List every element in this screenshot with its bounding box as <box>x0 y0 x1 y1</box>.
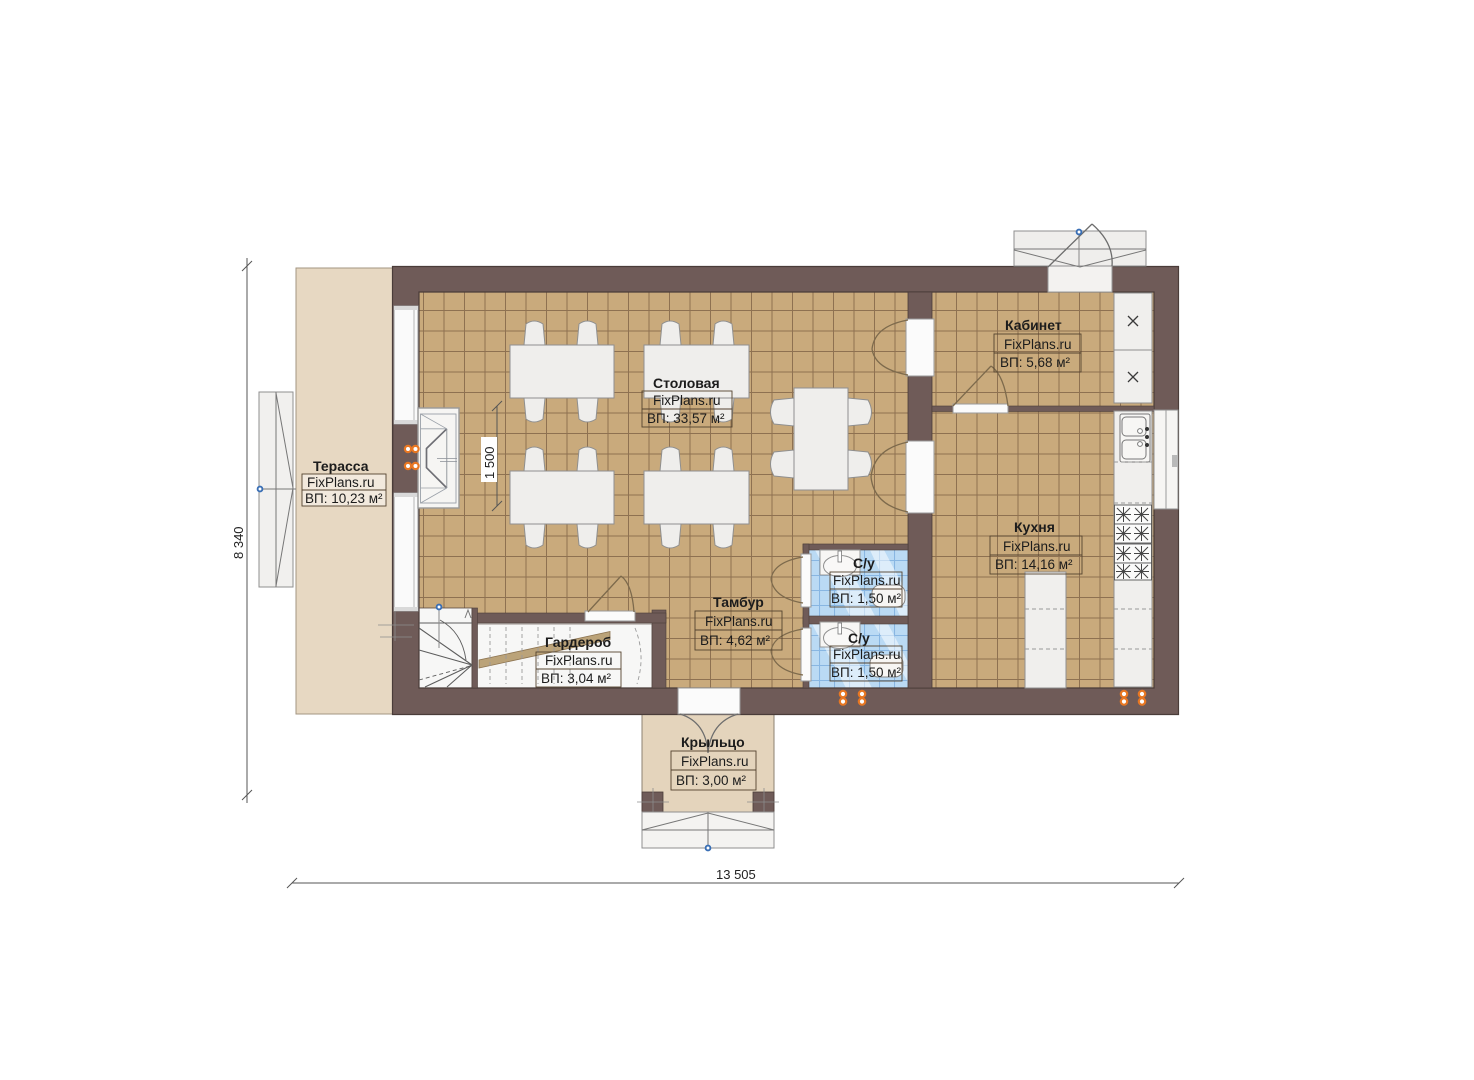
svg-text:ВП: 14,16 м²: ВП: 14,16 м² <box>995 557 1073 572</box>
svg-text:FixPlans.ru: FixPlans.ru <box>681 754 749 769</box>
svg-text:Столовая: Столовая <box>653 375 720 391</box>
svg-text:С/у: С/у <box>853 555 875 571</box>
svg-text:Кабинет: Кабинет <box>1005 317 1062 333</box>
svg-text:Терасса: Терасса <box>313 458 369 474</box>
svg-text:ВП: 4,62 м²: ВП: 4,62 м² <box>700 633 771 648</box>
svg-text:Гардероб: Гардероб <box>545 634 612 650</box>
svg-text:FixPlans.ru: FixPlans.ru <box>705 614 773 629</box>
svg-text:FixPlans.ru: FixPlans.ru <box>833 647 901 662</box>
svg-text:8 340: 8 340 <box>231 526 246 559</box>
svg-text:ВП: 33,57 м²: ВП: 33,57 м² <box>647 411 725 426</box>
svg-text:Крыльцо: Крыльцо <box>681 734 745 750</box>
svg-text:Тамбур: Тамбур <box>713 594 764 610</box>
svg-text:FixPlans.ru: FixPlans.ru <box>833 573 901 588</box>
svg-text:FixPlans.ru: FixPlans.ru <box>1003 539 1071 554</box>
svg-text:ВП: 5,68 м²: ВП: 5,68 м² <box>1000 355 1071 370</box>
svg-text:ВП: 3,04 м²: ВП: 3,04 м² <box>541 671 612 686</box>
svg-text:Кухня: Кухня <box>1014 519 1055 535</box>
svg-text:FixPlans.ru: FixPlans.ru <box>1004 337 1072 352</box>
svg-text:13 505: 13 505 <box>716 867 756 882</box>
svg-text:С/у: С/у <box>848 630 870 646</box>
svg-text:FixPlans.ru: FixPlans.ru <box>545 653 613 668</box>
svg-text:ВП: 1,50 м²: ВП: 1,50 м² <box>831 591 902 606</box>
svg-text:FixPlans.ru: FixPlans.ru <box>653 393 721 408</box>
svg-text:ВП: 10,23 м²: ВП: 10,23 м² <box>305 491 383 506</box>
svg-text:ВП: 1,50 м²: ВП: 1,50 м² <box>831 665 902 680</box>
svg-text:ВП: 3,00 м²: ВП: 3,00 м² <box>676 773 747 788</box>
svg-text:FixPlans.ru: FixPlans.ru <box>307 475 375 490</box>
svg-text:1 500: 1 500 <box>482 446 497 479</box>
